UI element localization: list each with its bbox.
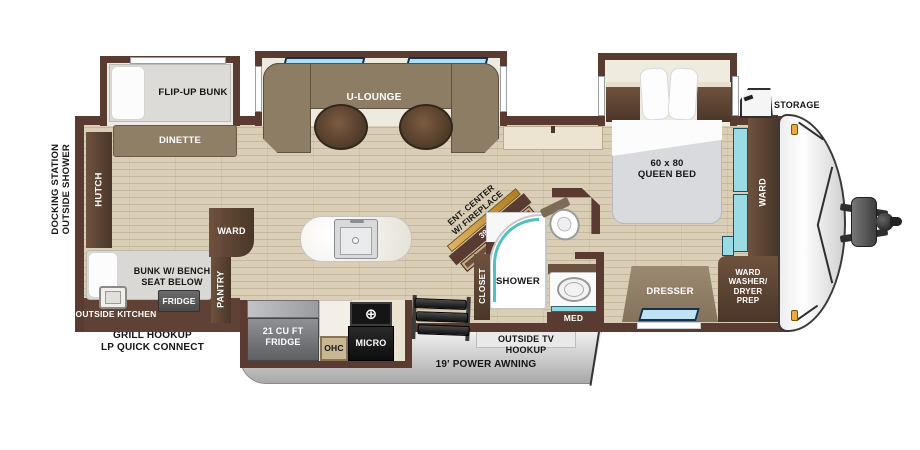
dresser-label: DRESSER: [622, 286, 718, 297]
closet-label: CLOSET: [477, 251, 487, 321]
wall-rear: [75, 116, 84, 332]
u-lounge-label: U-LOUNGE: [334, 92, 414, 104]
wardrobe-mirror-small: [722, 236, 734, 256]
lounge-side-window-right: [500, 66, 507, 112]
bed-pillow-left: [639, 67, 671, 121]
lounge-table-right: [399, 104, 453, 150]
ward-washer-dryer-label: WARD WASHER/ DRYER PREP: [718, 268, 778, 306]
wardrobe-mirror-bottom: [733, 194, 748, 252]
bath-wall-stub-v: [596, 252, 604, 323]
shower-label: SHOWER: [489, 276, 547, 287]
bunk-bench-label: BUNK W/ BENCH SEAT BELOW: [120, 266, 224, 287]
nightstand-right: [697, 82, 731, 122]
u-lounge-sofa-right-arm: [451, 63, 499, 153]
cooktop-burner-icon: ⊕: [358, 303, 384, 325]
power-awning-label: 19' POWER AWNING: [428, 359, 544, 371]
outside-kitchen-sink-basin: [105, 291, 121, 304]
hutch-label: HUTCH: [93, 150, 104, 230]
cabinet-handle: [551, 126, 555, 133]
bedroom-window: [638, 308, 700, 321]
hitch-jack-stem: [890, 217, 902, 226]
bedroom-window-sill: [637, 322, 701, 329]
bath-wall-stub-h: [575, 252, 604, 259]
dinette-label: DINETTE: [140, 135, 220, 146]
docking-station-label: DOCKING STATION OUTSIDE SHOWER: [50, 114, 72, 264]
wardrobe-mirror-top: [733, 128, 748, 192]
bunk-pillow: [111, 66, 145, 120]
vanity-sink-ring: [564, 282, 584, 297]
mid-wardrobe-label: WARD: [209, 226, 254, 237]
outside-kitchen-label: OUTSIDE KITCHEN: [66, 309, 166, 319]
u-lounge-sofa-left-arm: [263, 63, 311, 153]
bed-pillow-right: [667, 67, 699, 121]
storage-compartment: [740, 88, 773, 118]
ohc-label: OHC: [320, 343, 348, 353]
interior-fridge-label: FRIDGE: [158, 296, 200, 306]
queen-bed-label: 60 x 80 QUEEN BED: [614, 158, 720, 180]
fridge-21-label: 21 CU FT FRIDGE: [250, 326, 316, 347]
bed-side-window-left: [598, 76, 605, 116]
lounge-table-left: [314, 104, 368, 150]
micro-label: MICRO: [348, 338, 394, 349]
island-faucet-icon: [350, 220, 364, 223]
grill-hookup-label: GRILL HOOKUP LP QUICK CONNECT: [60, 330, 245, 354]
nightstand-left: [606, 82, 640, 122]
marker-light-bottom-icon: [791, 310, 798, 321]
entry-steps: [409, 293, 471, 345]
front-cap: [778, 114, 846, 332]
pantry-label: PANTRY: [216, 254, 227, 324]
bunk-window: [130, 57, 226, 64]
bed-side-window-right: [732, 76, 739, 116]
outside-tv-hookup-label: OUTSIDE TV HOOKUP: [478, 334, 574, 355]
front-wardrobe-label: WARD: [758, 152, 769, 232]
island-drain-icon: [352, 237, 359, 244]
storage-label: STORAGE: [774, 100, 818, 111]
marker-light-top-icon: [791, 124, 798, 135]
floor-plan: DOCKING STATION OUTSIDE SHOWER GRILL HOO…: [0, 0, 920, 450]
fridge-21-lid: [247, 300, 319, 318]
med-cabinet-label: MED: [547, 312, 600, 324]
propane-cover: [851, 197, 877, 247]
flip-up-bunk-label: FLIP-UP BUNK: [150, 87, 236, 98]
lounge-side-window-left: [255, 66, 262, 112]
